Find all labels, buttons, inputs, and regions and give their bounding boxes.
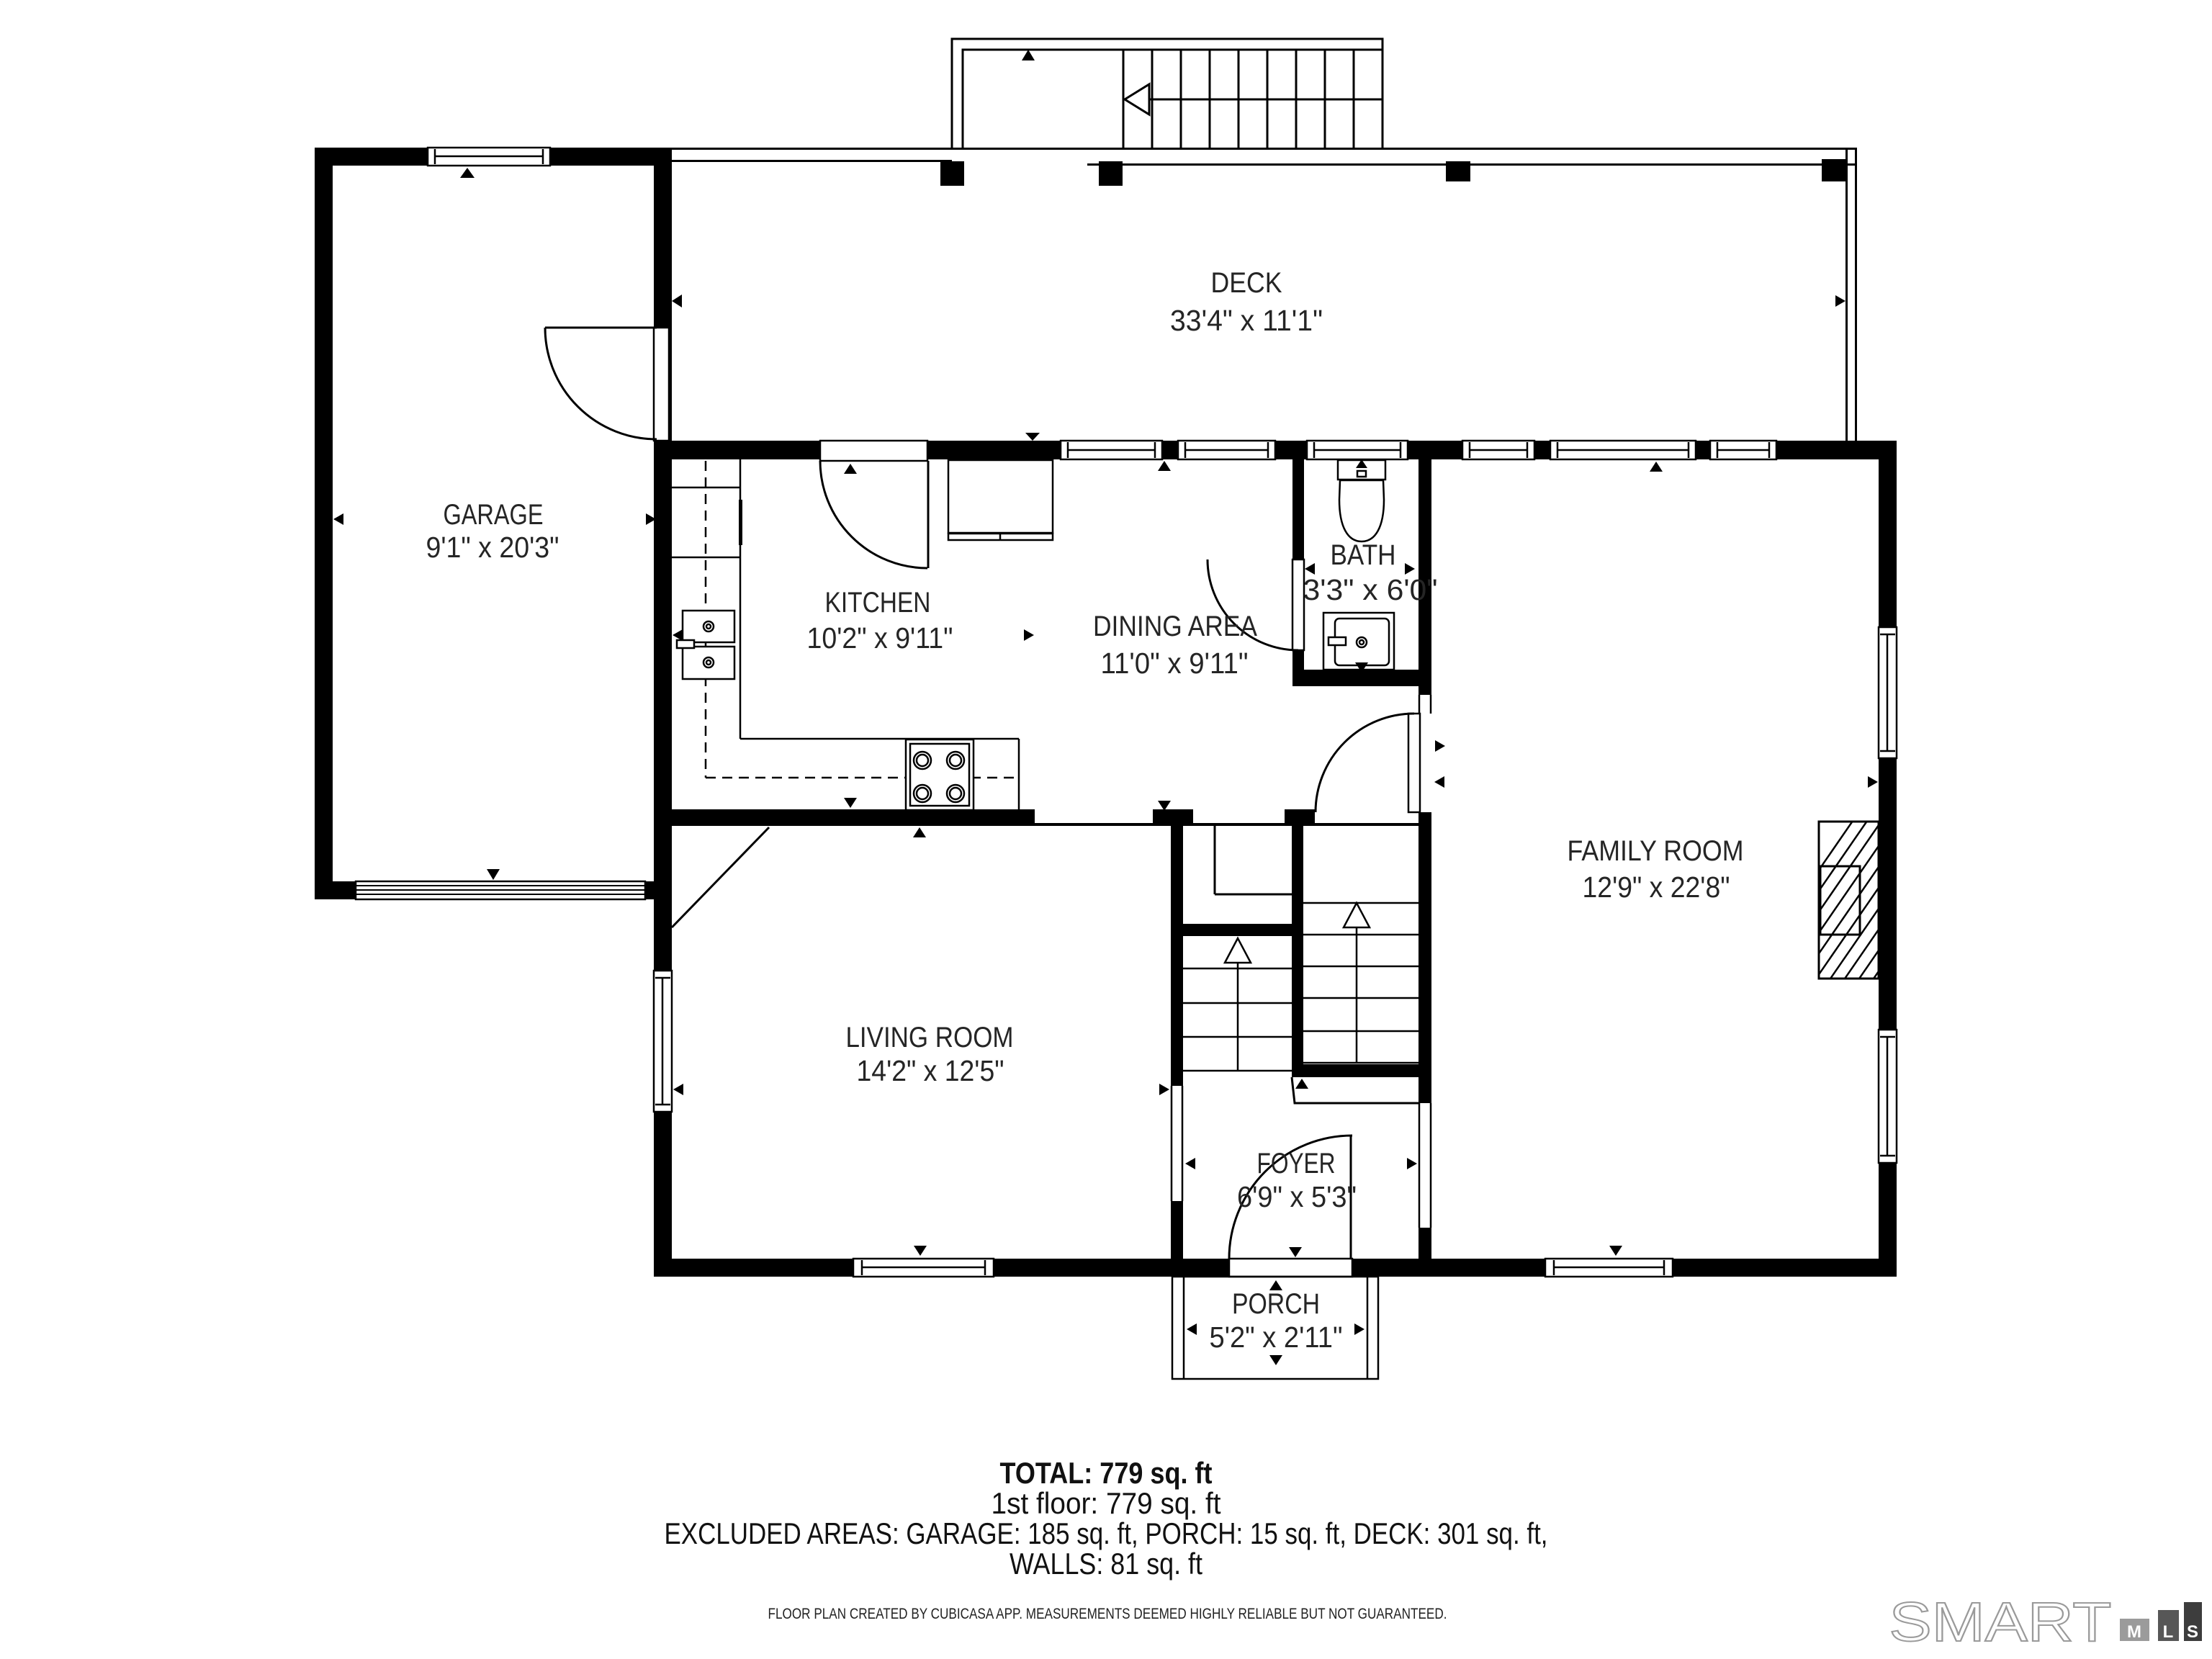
svg-text:FLOOR PLAN CREATED BY CUBICASA: FLOOR PLAN CREATED BY CUBICASA APP. MEAS… [768,1605,1447,1622]
svg-text:L: L [2163,1622,2174,1642]
svg-text:1st floor: 779 sq. ft: 1st floor: 779 sq. ft [992,1486,1221,1520]
svg-text:S: S [2187,1622,2198,1642]
svg-text:LIVING ROOM: LIVING ROOM [846,1022,1014,1053]
svg-text:SMART: SMART [1889,1591,2112,1653]
svg-text:9'1" x 20'3": 9'1" x 20'3" [426,531,559,564]
svg-text:DINING AREA: DINING AREA [1093,611,1257,642]
svg-text:FOYER: FOYER [1257,1148,1336,1179]
svg-text:WALLS: 81 sq. ft: WALLS: 81 sq. ft [1010,1547,1202,1581]
svg-text:14'2" x 12'5": 14'2" x 12'5" [857,1054,1004,1087]
svg-text:PORCH: PORCH [1232,1288,1320,1320]
svg-text:FAMILY ROOM: FAMILY ROOM [1568,835,1744,867]
svg-text:GARAGE: GARAGE [444,499,544,531]
svg-text:11'0" x 9'11": 11'0" x 9'11" [1101,647,1249,680]
svg-text:33'4" x 11'1": 33'4" x 11'1" [1170,304,1323,337]
svg-text:M: M [2127,1622,2141,1642]
svg-text:KITCHEN: KITCHEN [825,587,931,619]
svg-text:BATH: BATH [1331,539,1396,571]
svg-text:12'9" x 22'8": 12'9" x 22'8" [1583,871,1730,904]
svg-text:5'2" x 2'11": 5'2" x 2'11" [1210,1321,1343,1354]
svg-text:3'3" x 6'0": 3'3" x 6'0" [1303,573,1438,606]
svg-text:EXCLUDED AREAS: GARAGE: 185 sq: EXCLUDED AREAS: GARAGE: 185 sq. ft, PORC… [665,1516,1548,1550]
svg-text:DECK: DECK [1211,267,1282,299]
svg-text:10'2" x 9'11": 10'2" x 9'11" [807,621,953,655]
svg-text:6'9" x 5'3": 6'9" x 5'3" [1237,1180,1357,1213]
svg-text:TOTAL: 779 sq. ft: TOTAL: 779 sq. ft [1000,1456,1213,1490]
